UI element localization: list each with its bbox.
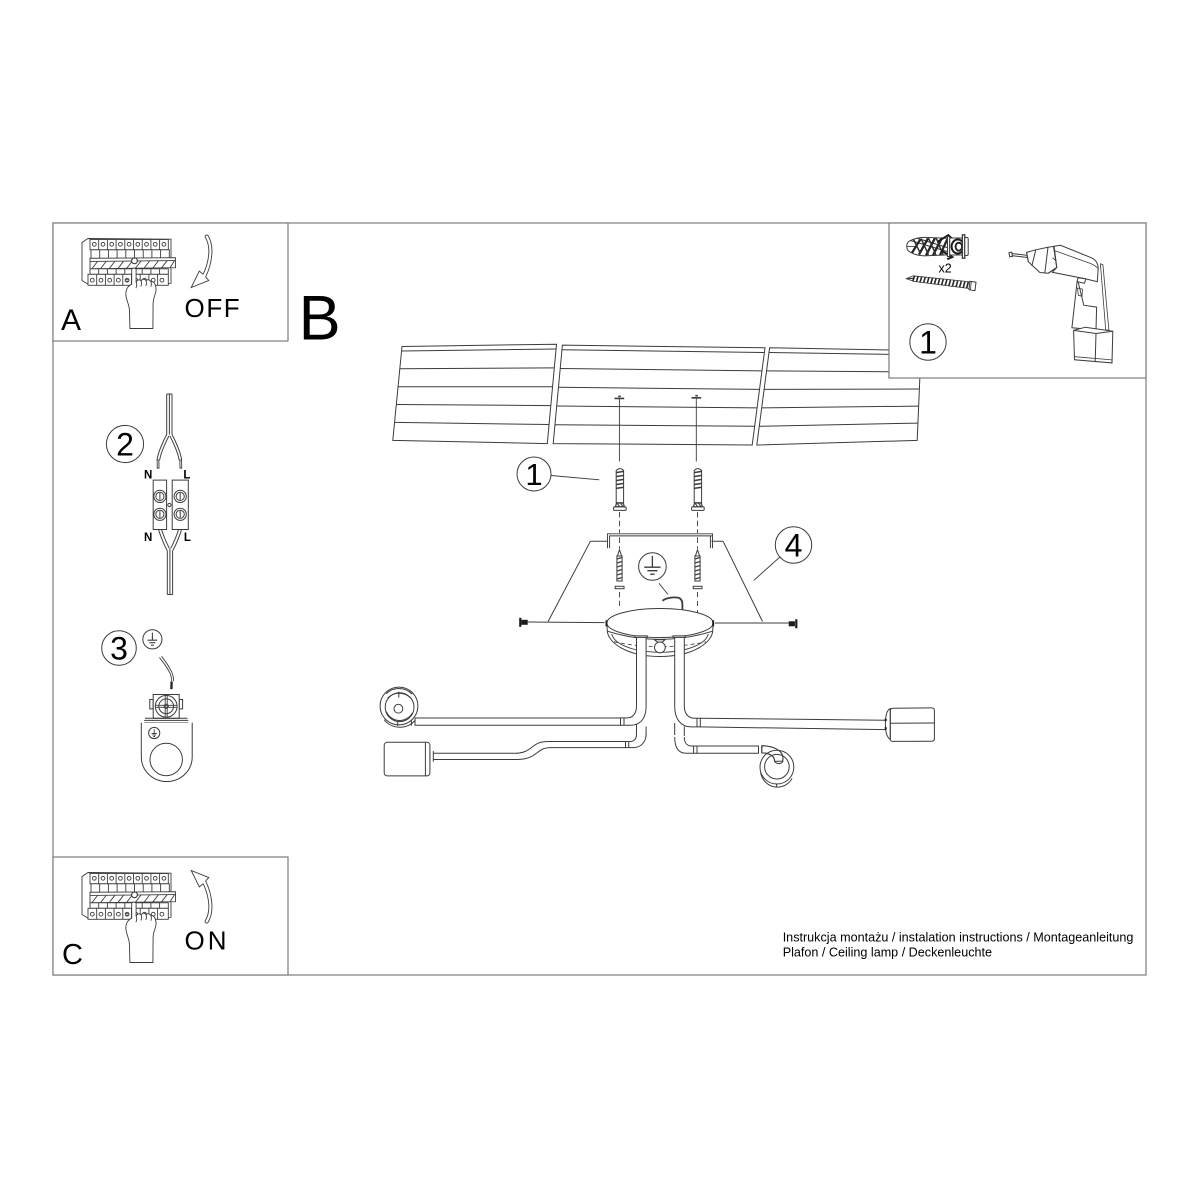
svg-text:B: B <box>299 283 341 353</box>
svg-text:1: 1 <box>919 325 937 361</box>
svg-text:N: N <box>144 469 152 481</box>
svg-text:x2: x2 <box>939 261 952 275</box>
svg-text:Plafon / Ceiling lamp / Decken: Plafon / Ceiling lamp / Deckenleuchte <box>783 946 992 960</box>
svg-text:Instrukcja montażu / instalati: Instrukcja montażu / instalation instruc… <box>783 931 1134 945</box>
svg-text:2: 2 <box>116 427 134 463</box>
svg-text:L: L <box>184 532 191 544</box>
svg-text:4: 4 <box>785 528 803 564</box>
svg-text:ON: ON <box>185 926 230 956</box>
svg-text:N: N <box>144 532 152 544</box>
svg-text:C: C <box>62 939 83 971</box>
svg-text:3: 3 <box>110 631 128 667</box>
svg-text:1: 1 <box>525 457 542 492</box>
svg-text:A: A <box>61 304 81 337</box>
svg-text:OFF: OFF <box>185 293 242 323</box>
